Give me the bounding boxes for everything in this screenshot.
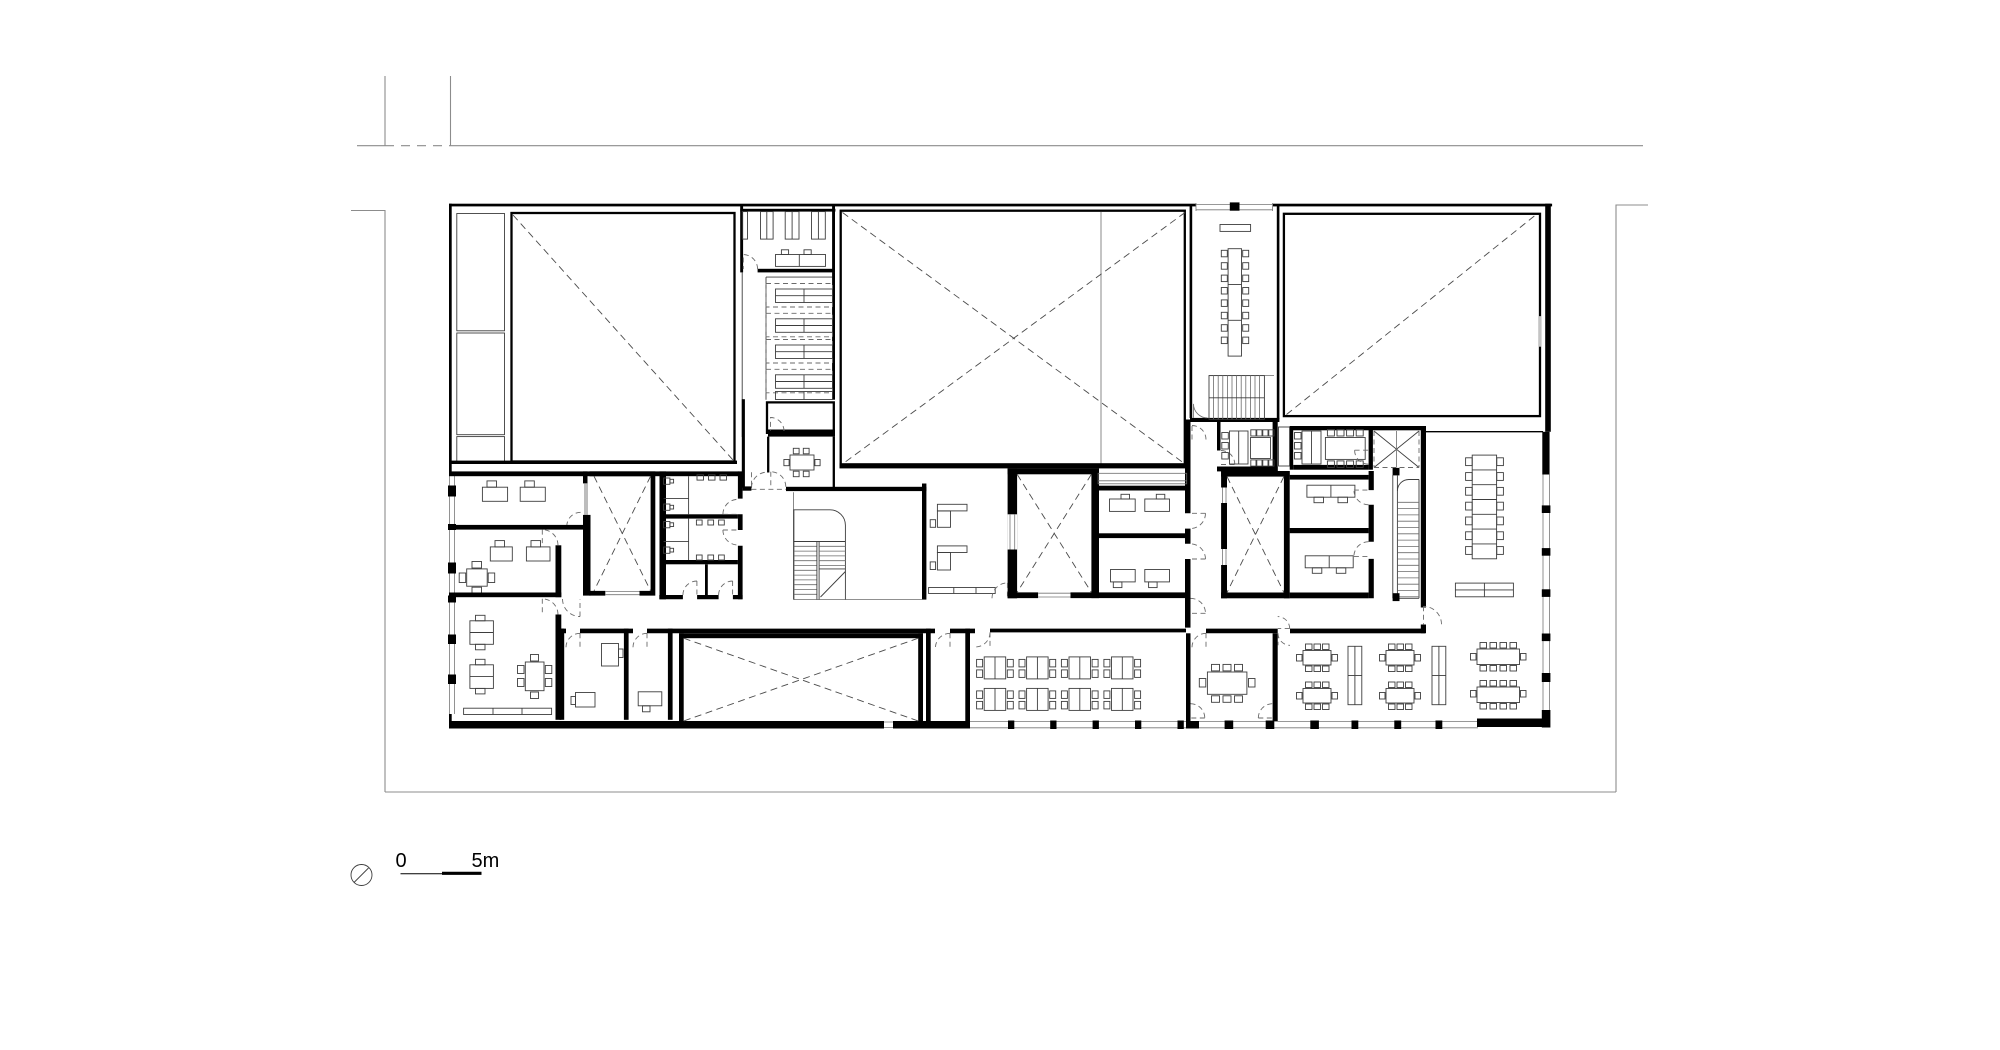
svg-text:5m: 5m	[472, 850, 500, 872]
svg-text:0: 0	[396, 850, 407, 872]
